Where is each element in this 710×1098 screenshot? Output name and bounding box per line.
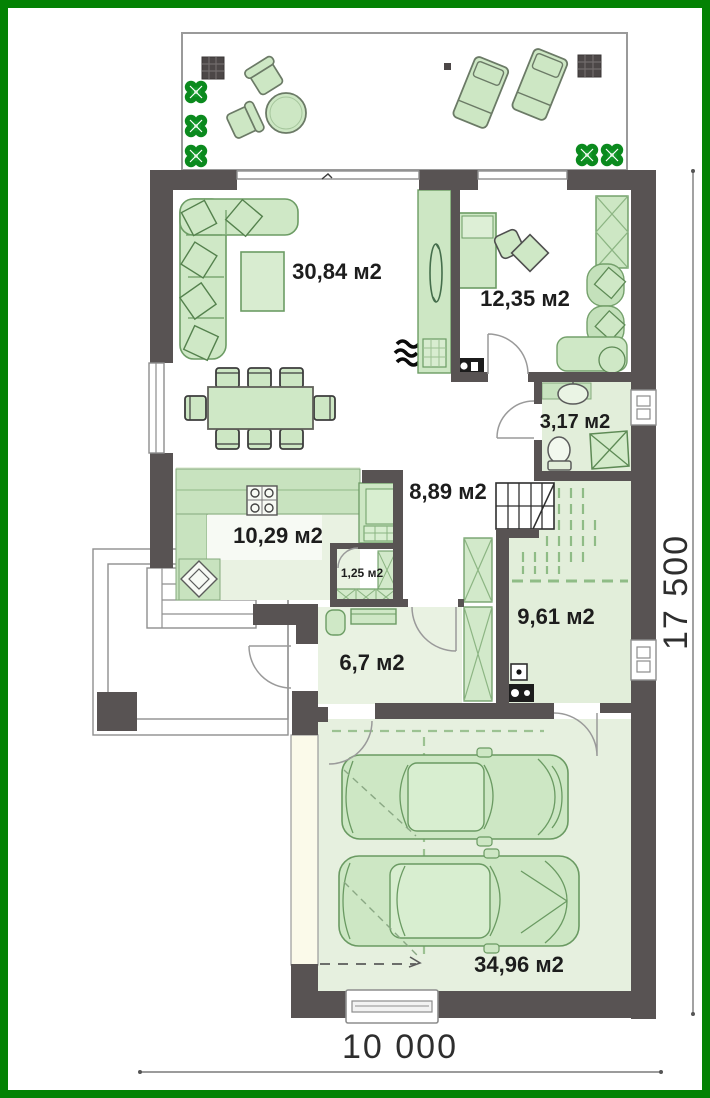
svg-text:10 000: 10 000 [342,1028,458,1066]
svg-text:12,35 м2: 12,35 м2 [480,286,570,311]
svg-text:9,61 м2: 9,61 м2 [517,604,594,629]
svg-text:10,29 м2: 10,29 м2 [233,523,323,548]
svg-text:3,17 м2: 3,17 м2 [540,411,610,433]
svg-text:34,96 м2: 34,96 м2 [474,952,564,977]
svg-text:30,84 м2: 30,84 м2 [292,259,382,284]
svg-text:8,89 м2: 8,89 м2 [409,479,486,504]
svg-text:1,25 м2: 1,25 м2 [341,566,384,580]
svg-text:17 500: 17 500 [657,534,695,650]
svg-text:6,7 м2: 6,7 м2 [339,650,404,675]
